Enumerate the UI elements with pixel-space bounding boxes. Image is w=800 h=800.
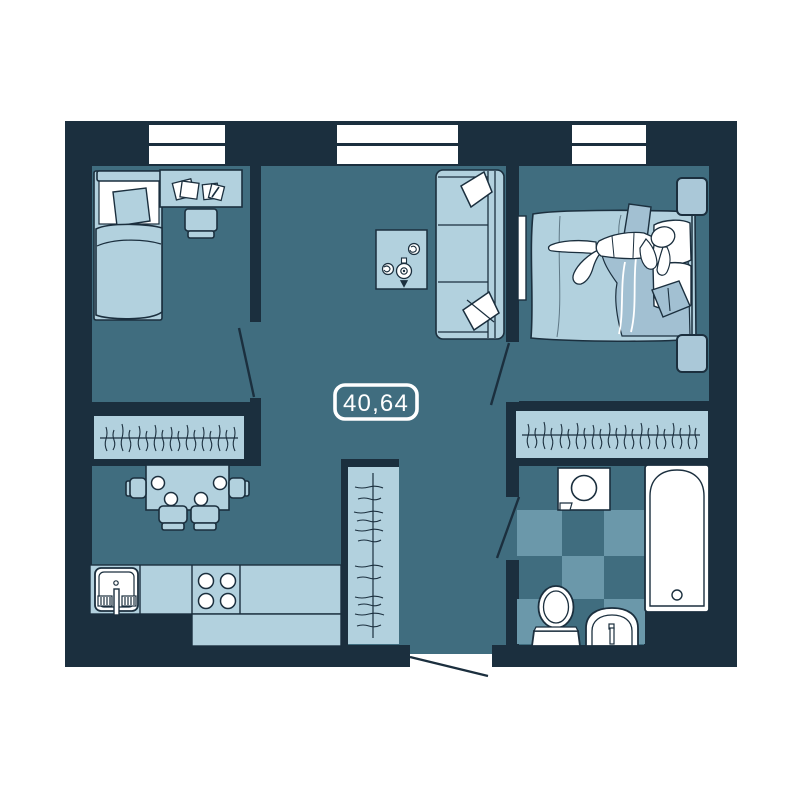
svg-text:40,64: 40,64 (343, 390, 409, 417)
